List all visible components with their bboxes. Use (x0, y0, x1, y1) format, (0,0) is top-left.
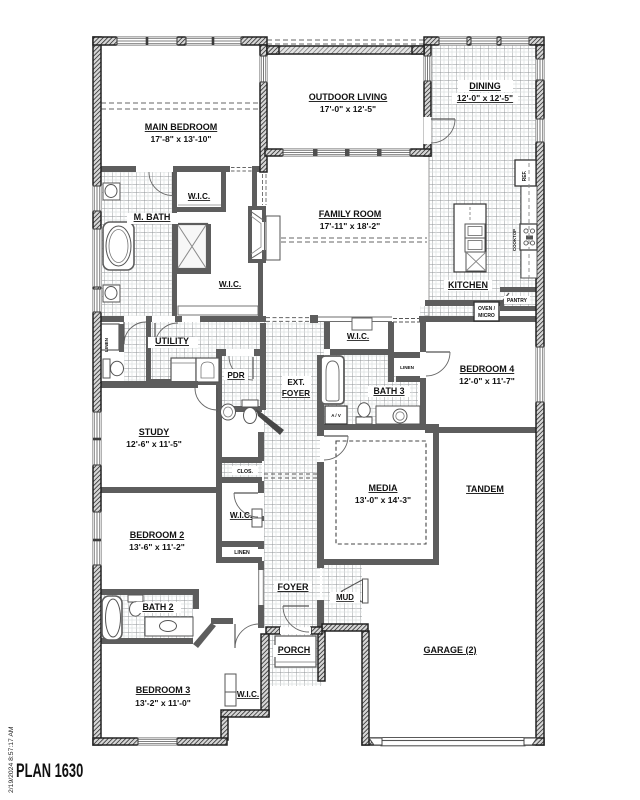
svg-text:13'-0" x 14'-3": 13'-0" x 14'-3" (355, 495, 411, 505)
svg-text:W.I.C.: W.I.C. (219, 280, 241, 289)
svg-text:LINEN: LINEN (104, 337, 109, 351)
svg-text:A / V: A / V (331, 413, 341, 418)
svg-text:17'-0" x 12'-5": 17'-0" x 12'-5" (320, 104, 376, 114)
svg-text:FOYER: FOYER (282, 389, 310, 398)
svg-text:BEDROOM 2: BEDROOM 2 (130, 530, 185, 540)
svg-text:BEDROOM 3: BEDROOM 3 (136, 685, 191, 695)
svg-text:17'-8" x 13'-10": 17'-8" x 13'-10" (151, 134, 212, 144)
svg-text:EXT.: EXT. (287, 378, 304, 387)
svg-text:MUD: MUD (336, 593, 354, 602)
svg-text:PLAN 1630: PLAN 1630 (16, 759, 83, 781)
svg-text:W.I.C.: W.I.C. (347, 332, 369, 341)
svg-text:CLOS.: CLOS. (237, 469, 253, 475)
svg-text:W.I.C.: W.I.C. (188, 192, 210, 201)
svg-text:12'-6" x 11'-5": 12'-6" x 11'-5" (126, 439, 182, 449)
svg-text:BEDROOM 4: BEDROOM 4 (460, 364, 515, 374)
svg-text:DINING: DINING (469, 81, 501, 91)
svg-text:OUTDOOR LIVING: OUTDOOR LIVING (309, 92, 388, 102)
svg-text:17'-11" x 18'-2": 17'-11" x 18'-2" (320, 221, 381, 231)
svg-text:M. BATH: M. BATH (134, 212, 171, 222)
svg-text:COOKTOP: COOKTOP (512, 229, 517, 251)
svg-text:13'-2" x 11'-0": 13'-2" x 11'-0" (135, 698, 191, 708)
svg-text:W.I.C.: W.I.C. (237, 690, 259, 699)
svg-text:UTILITY: UTILITY (155, 336, 189, 346)
svg-text:STUDY: STUDY (139, 427, 170, 437)
svg-text:MAIN BEDROOM: MAIN BEDROOM (145, 122, 218, 132)
svg-text:PDR: PDR (227, 371, 244, 380)
svg-text:12'-0" x 12'-5": 12'-0" x 12'-5" (457, 93, 513, 103)
svg-text:PANTRY: PANTRY (507, 298, 528, 304)
svg-text:FAMILY ROOM: FAMILY ROOM (319, 209, 382, 219)
svg-text:LINEN: LINEN (400, 365, 414, 370)
svg-text:REF.: REF. (522, 170, 528, 181)
svg-text:BATH 2: BATH 2 (142, 602, 173, 612)
svg-text:BATH 3: BATH 3 (373, 386, 404, 396)
svg-text:W.I.C.: W.I.C. (230, 511, 252, 520)
svg-text:MEDIA: MEDIA (369, 483, 399, 493)
svg-text:KITCHEN: KITCHEN (448, 280, 488, 290)
svg-text:13'-6" x 11'-2": 13'-6" x 11'-2" (129, 542, 185, 552)
svg-text:MICRO: MICRO (478, 313, 495, 319)
svg-text:2/19/2024 8:57:17 AM: 2/19/2024 8:57:17 AM (8, 726, 15, 793)
svg-text:FOYER: FOYER (277, 582, 309, 592)
svg-text:12'-0" x 11'-7": 12'-0" x 11'-7" (459, 376, 515, 386)
svg-text:TANDEM: TANDEM (466, 484, 504, 494)
svg-text:LINEN: LINEN (234, 550, 250, 556)
svg-text:OVEN /: OVEN / (478, 306, 496, 312)
svg-text:GARAGE (2): GARAGE (2) (423, 645, 476, 655)
svg-text:PORCH: PORCH (278, 645, 311, 655)
